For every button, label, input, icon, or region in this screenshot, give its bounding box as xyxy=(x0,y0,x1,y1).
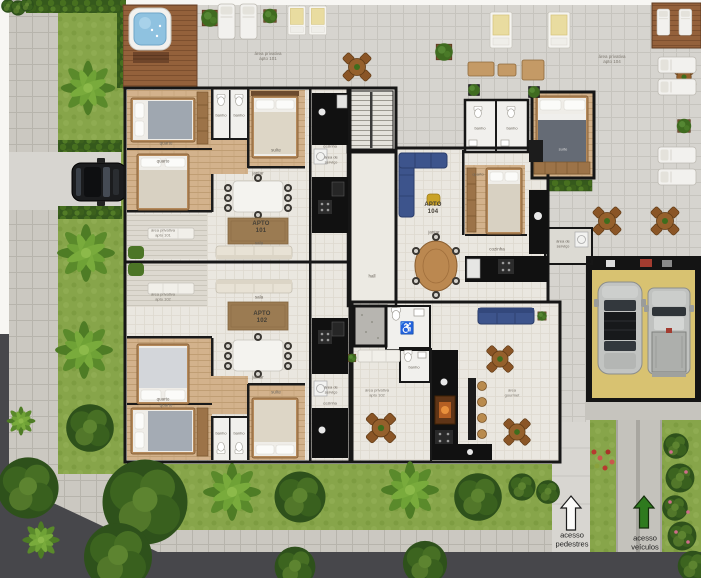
label-living-101: sala xyxy=(255,240,263,245)
elevator xyxy=(354,306,386,346)
label-bath-101a: banho xyxy=(215,114,226,119)
label-bath-terrace-b: banho xyxy=(506,127,517,132)
label-bath-102b: banho xyxy=(233,432,244,437)
label-private-area-101-side: área privativaapto 101 xyxy=(151,228,175,237)
label-bath-terrace-a: banho xyxy=(474,127,485,132)
label-dining-104: jantar xyxy=(428,229,439,234)
label-service-101: área deserviço xyxy=(324,155,338,164)
label-bedroom-101a: quarto xyxy=(160,140,173,145)
label-suite-101: suíte xyxy=(271,147,281,152)
label-private-area-102-bottom: área privativaapto 102 xyxy=(365,388,389,397)
label-apto-101: APTO101 xyxy=(252,221,269,235)
label-suite-104: suíte xyxy=(559,148,568,153)
label-hall: hall xyxy=(368,273,375,278)
label-service-102: área deserviço xyxy=(324,385,338,394)
label-vehicle-access: acessoveículos xyxy=(631,534,659,551)
label-dining-102: jantar xyxy=(252,374,263,379)
label-bedroom-102a: quarto xyxy=(157,396,170,401)
staircase xyxy=(351,91,393,149)
label-bedroom-101b: quarto xyxy=(157,158,170,163)
label-bath-101b: banho xyxy=(233,114,244,119)
label-bedroom-104: quarto xyxy=(472,173,483,178)
site-floor-plan: área privativaapto 101 área privativaapt… xyxy=(0,0,701,578)
garage xyxy=(586,256,701,402)
label-apto-102: APTO102 xyxy=(253,311,270,325)
top-hedge xyxy=(26,0,126,13)
label-dining-101: jantar xyxy=(252,170,263,175)
label-bath-gourmet: banho xyxy=(408,366,419,371)
label-bath-102a: banho xyxy=(215,432,226,437)
sedan-car xyxy=(594,282,646,374)
black-car xyxy=(72,158,126,206)
label-service-104: área deserviço xyxy=(556,239,570,248)
label-apto-104: APTO104 xyxy=(424,202,441,216)
label-private-area-101-top: área privativaapto 101 xyxy=(254,51,281,61)
label-living-102: sala xyxy=(255,294,263,299)
plan-graphic xyxy=(0,0,701,578)
label-kitchen-104: cozinha xyxy=(489,246,505,251)
wheelchair-icon: ♿ xyxy=(400,321,415,335)
label-bedroom-102b: quarto xyxy=(160,402,173,407)
label-suite-102: suíte xyxy=(271,389,281,394)
label-gourmet-area: áreagourmet xyxy=(505,388,520,397)
pickup-truck xyxy=(644,288,694,377)
label-kitchen-101: cozinha xyxy=(323,145,337,150)
label-private-area-104-top: área privativaapto 104 xyxy=(598,54,625,64)
label-kitchen-102: cozinha xyxy=(323,402,337,407)
label-pedestrian-access: acessopedestres xyxy=(556,531,589,548)
spa-hot-tub xyxy=(129,8,171,63)
label-private-area-102-side: área privativaapto 102 xyxy=(151,292,175,301)
